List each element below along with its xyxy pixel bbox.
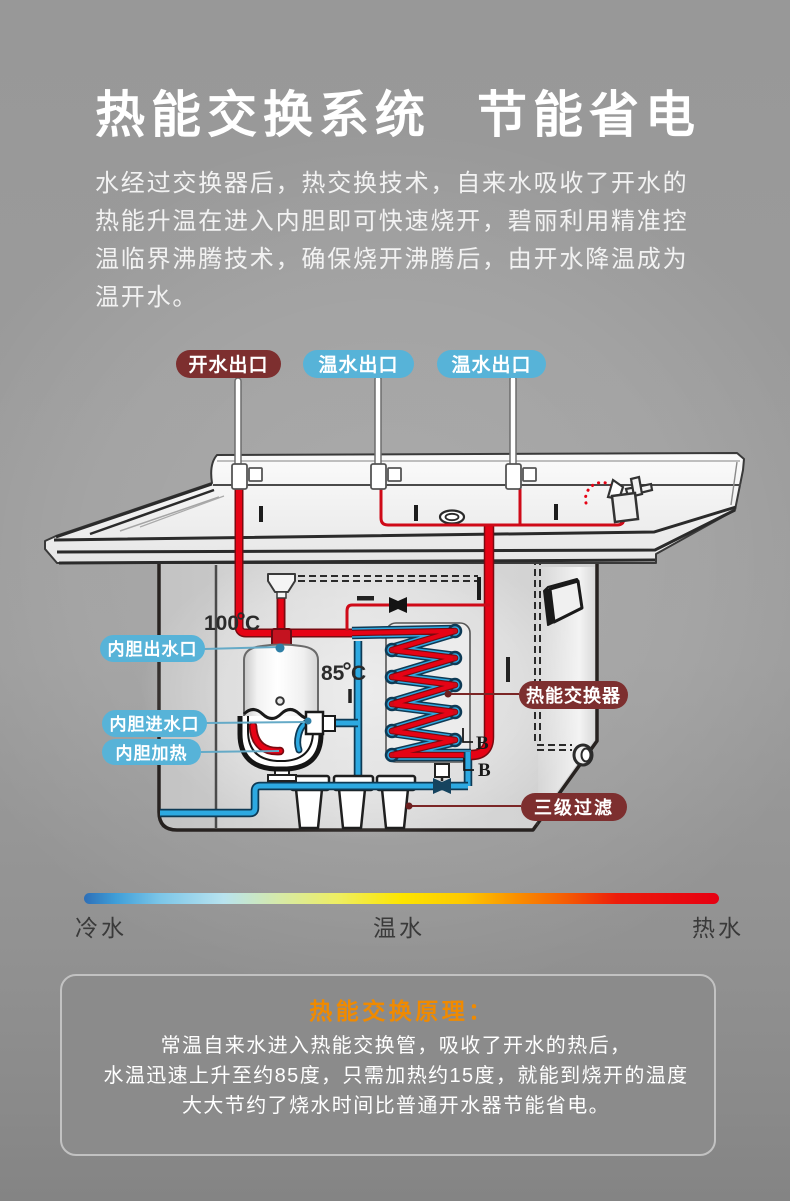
svg-text:C: C — [351, 662, 366, 685]
svg-text:温水出口: 温水出口 — [318, 353, 398, 376]
svg-text:温水出口: 温水出口 — [451, 353, 531, 376]
svg-text:内胆进水口: 内胆进水口 — [110, 714, 200, 734]
svg-text:三级过滤: 三级过滤 — [534, 797, 614, 818]
svg-text:B: B — [478, 760, 491, 781]
svg-text:热能交换器: 热能交换器 — [526, 685, 621, 706]
svg-text:内胆加热: 内胆加热 — [116, 743, 188, 763]
svg-text:100: 100 — [204, 612, 239, 635]
svg-text:B: B — [476, 733, 489, 754]
svg-text:开水出口: 开水出口 — [188, 353, 268, 376]
svg-text:85: 85 — [321, 662, 345, 685]
svg-text:内胆出水口: 内胆出水口 — [108, 639, 198, 659]
svg-text:C: C — [245, 612, 260, 635]
